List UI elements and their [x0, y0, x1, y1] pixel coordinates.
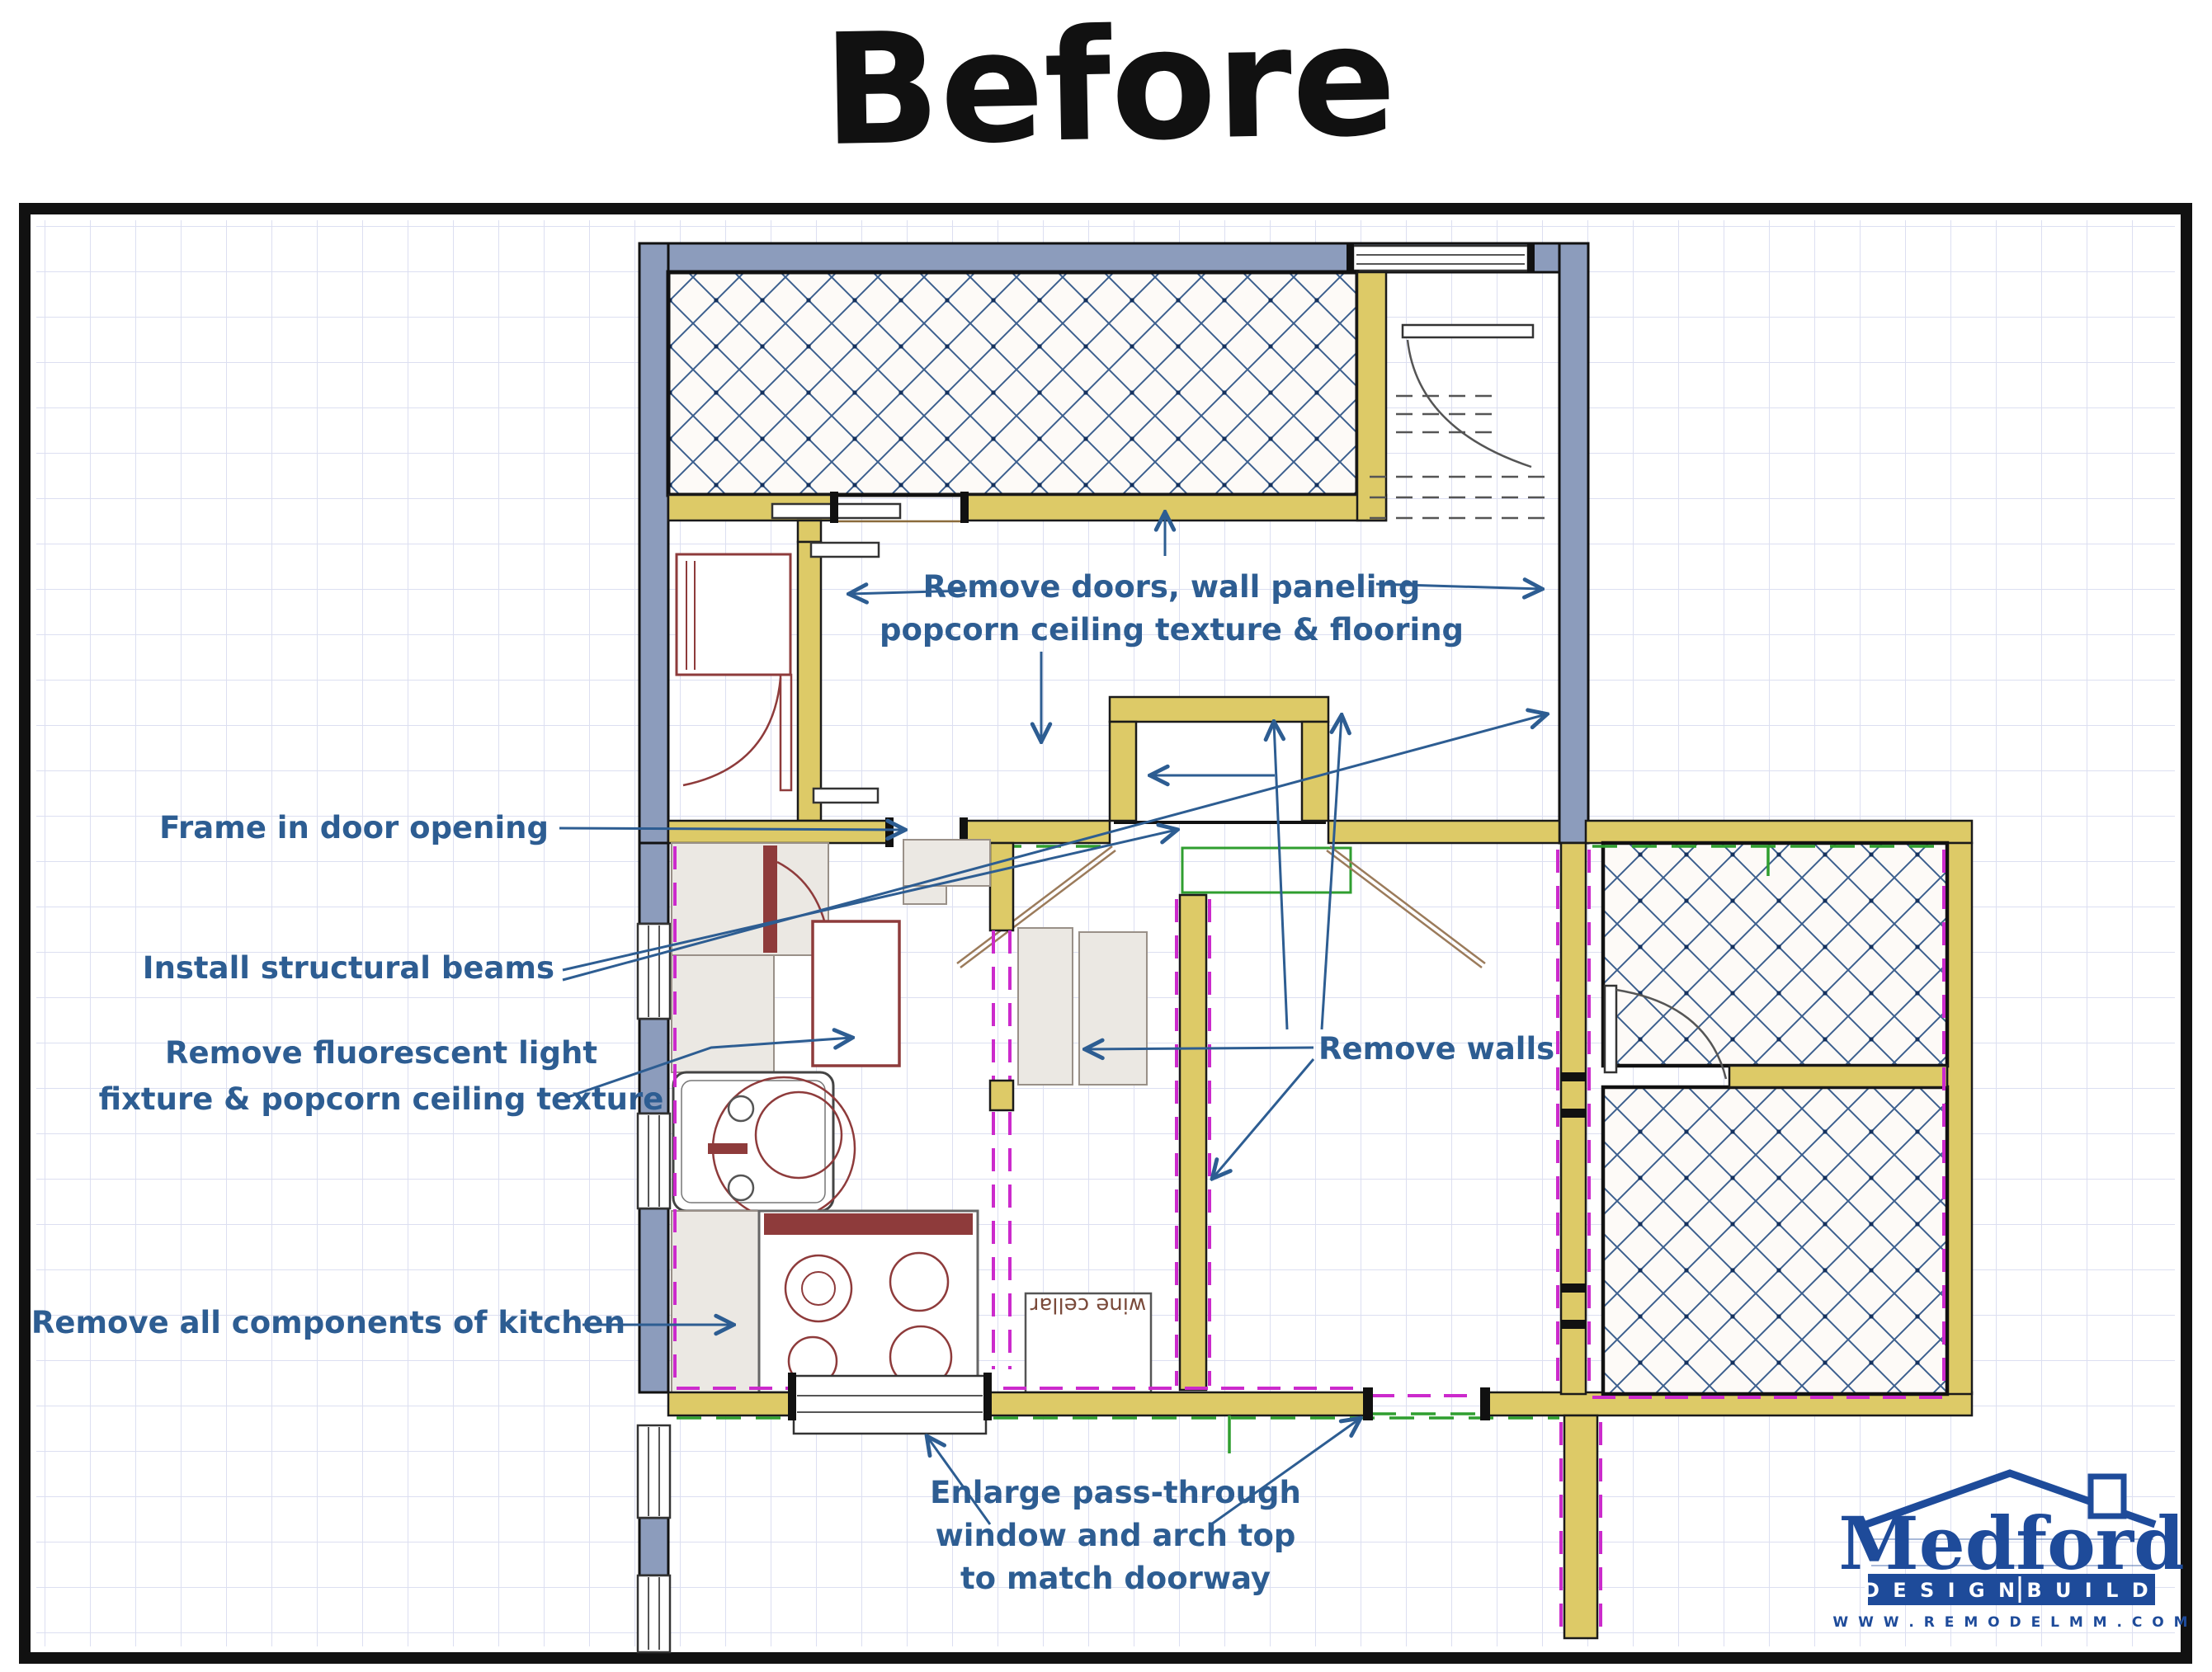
annotation-text: fixture & popcorn ceiling texture	[99, 1081, 664, 1117]
removed-wall-dining-family	[1177, 895, 1210, 1390]
window-top	[1347, 244, 1535, 272]
island	[813, 921, 899, 1066]
annotation-text: Remove walls	[1318, 1031, 1554, 1067]
page-title: Before	[822, 0, 1398, 180]
wing-right-wall	[1947, 843, 1972, 1394]
tall-cabinet	[763, 845, 777, 953]
logo-build: B U I L D	[2026, 1579, 2151, 1602]
wall-stub-below	[1561, 1415, 1601, 1638]
logo-name: Medford	[1838, 1500, 2184, 1586]
annotation-text: Install structural beams	[143, 950, 554, 986]
wall-hatch-entry-divider	[1357, 272, 1386, 520]
window-left-1	[638, 924, 670, 1019]
sink	[673, 1072, 855, 1219]
leader-arrow	[559, 828, 904, 830]
wing-divider-wall	[1729, 1066, 1947, 1087]
wall-right	[1559, 243, 1588, 843]
annotation-text: popcorn ceiling texture & flooring	[880, 612, 1464, 648]
wine-cellar: wine cellar	[1026, 1293, 1151, 1392]
hatched-room-wing-upper	[1603, 843, 1947, 1066]
annotation-text: Remove fluorescent light	[165, 1035, 597, 1071]
annotation-text: Enlarge pass-through	[930, 1475, 1301, 1510]
floor-plan-canvas: Before	[0, 0, 2212, 1672]
utility-right-wall	[798, 542, 821, 821]
wing-left-wall	[1561, 843, 1586, 1394]
screenshot-root: Before	[0, 0, 2212, 1672]
window-left-2	[638, 1114, 670, 1208]
wing-top-wall	[1586, 821, 1972, 843]
washer	[677, 554, 790, 675]
wine-cellar-label: wine cellar	[1030, 1293, 1146, 1317]
wall-left-upper	[639, 243, 668, 843]
window-left-4	[638, 1575, 670, 1652]
pass-through-window	[788, 1373, 992, 1434]
logo-design: D E S I G N	[1863, 1579, 2018, 1602]
hatched-room-top	[668, 272, 1357, 495]
annotation-text: Frame in door opening	[159, 810, 549, 845]
annotation-text: Remove all components of kitchen	[31, 1305, 625, 1340]
stove	[759, 1211, 978, 1392]
upper-cabinets	[672, 843, 828, 955]
hatched-room-wing-lower	[1603, 1087, 1947, 1394]
annotation-text: to match doorway	[960, 1561, 1271, 1596]
counter-low	[672, 1211, 759, 1392]
logo-website: W W W . R E M O D E L M M . C O M	[1832, 1614, 2190, 1631]
annotation-text: Remove doors, wall paneling	[923, 569, 1421, 605]
window-left-3	[638, 1425, 670, 1518]
leader-arrow-1	[1086, 1048, 1314, 1049]
